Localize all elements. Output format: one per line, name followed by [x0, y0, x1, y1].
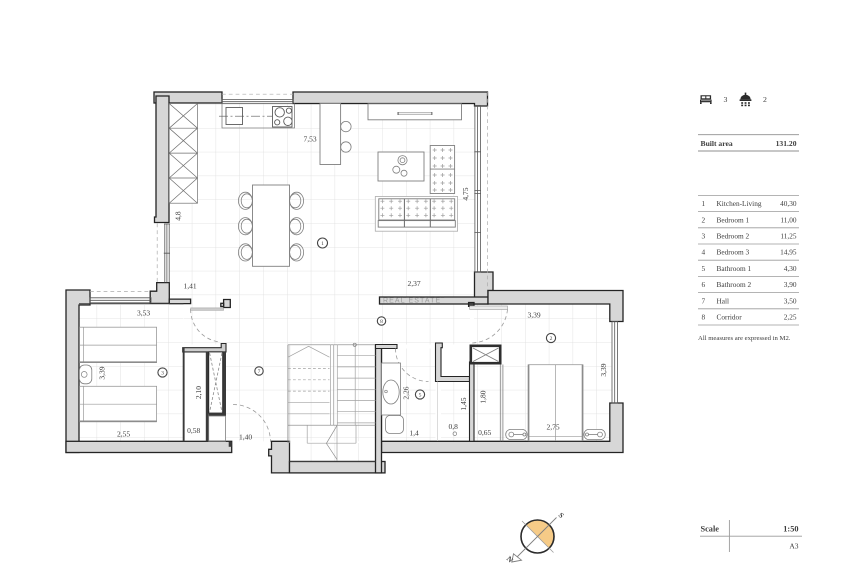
svg-text:40,30: 40,30: [780, 199, 797, 208]
svg-text:11,25: 11,25: [780, 232, 796, 241]
svg-text:4,8: 4,8: [174, 211, 183, 221]
svg-text:Scale: Scale: [701, 525, 720, 534]
svg-text:5: 5: [702, 264, 706, 273]
svg-text:131.20: 131.20: [776, 139, 797, 148]
svg-text:2: 2: [702, 215, 706, 224]
svg-text:Bedroom 3: Bedroom 3: [717, 248, 750, 257]
svg-text:3,50: 3,50: [784, 296, 797, 305]
svg-text:1: 1: [321, 241, 324, 247]
svg-text:S: S: [557, 511, 566, 520]
svg-text:3,90: 3,90: [784, 280, 797, 289]
svg-text:2,25: 2,25: [784, 313, 797, 322]
svg-text:Corridor: Corridor: [717, 313, 743, 322]
svg-text:4: 4: [702, 248, 706, 257]
svg-text:3,53: 3,53: [137, 309, 150, 318]
svg-text:4,75: 4,75: [461, 187, 470, 200]
svg-text:2: 2: [763, 95, 767, 104]
svg-text:A3: A3: [789, 542, 798, 551]
svg-text:Bathroom 1: Bathroom 1: [717, 264, 752, 273]
svg-text:8: 8: [380, 319, 383, 325]
svg-text:Hall: Hall: [717, 296, 730, 305]
svg-text:2,55: 2,55: [117, 430, 130, 439]
svg-text:Kitchen-Living: Kitchen-Living: [717, 199, 762, 208]
svg-text:Bedroom 2: Bedroom 2: [717, 232, 750, 241]
svg-text:3,39: 3,39: [527, 311, 540, 320]
svg-text:2: 2: [550, 336, 553, 342]
svg-text:All measures are expressed in: All measures are expressed in M2.: [698, 335, 791, 342]
svg-text:0,58: 0,58: [187, 426, 200, 435]
svg-text:14,95: 14,95: [780, 248, 797, 257]
svg-text:2,26: 2,26: [402, 386, 411, 399]
svg-text:6: 6: [702, 280, 706, 289]
svg-text:4,30: 4,30: [784, 264, 797, 273]
svg-text:2,75: 2,75: [546, 423, 559, 432]
svg-text:0,8: 0,8: [449, 422, 459, 431]
svg-text:3: 3: [724, 95, 728, 104]
svg-text:7,53: 7,53: [303, 135, 316, 144]
svg-text:7: 7: [702, 296, 706, 305]
svg-text:3: 3: [161, 371, 164, 377]
svg-text:3,39: 3,39: [98, 366, 107, 379]
svg-text:11,00: 11,00: [780, 215, 796, 224]
svg-text:1: 1: [702, 199, 706, 208]
svg-text:1:50: 1:50: [783, 525, 798, 534]
svg-text:2,37: 2,37: [407, 279, 420, 288]
svg-text:1,4: 1,4: [409, 429, 419, 438]
svg-text:3,39: 3,39: [599, 363, 608, 376]
svg-text:3: 3: [702, 232, 706, 241]
svg-text:Bathroom 2: Bathroom 2: [717, 280, 752, 289]
svg-text:Bedroom 1: Bedroom 1: [717, 215, 750, 224]
svg-text:8: 8: [702, 313, 706, 322]
svg-text:5: 5: [419, 393, 422, 399]
svg-text:1,41: 1,41: [183, 282, 196, 291]
svg-text:REAL ESTATE: REAL ESTATE: [383, 298, 441, 305]
svg-text:Built area: Built area: [701, 139, 733, 148]
svg-text:0,65: 0,65: [478, 428, 491, 437]
svg-text:7: 7: [258, 369, 261, 375]
svg-text:1,80: 1,80: [479, 390, 488, 403]
svg-text:1,45: 1,45: [459, 397, 468, 410]
svg-text:1,40: 1,40: [239, 433, 252, 442]
svg-text:2,10: 2,10: [194, 386, 203, 399]
